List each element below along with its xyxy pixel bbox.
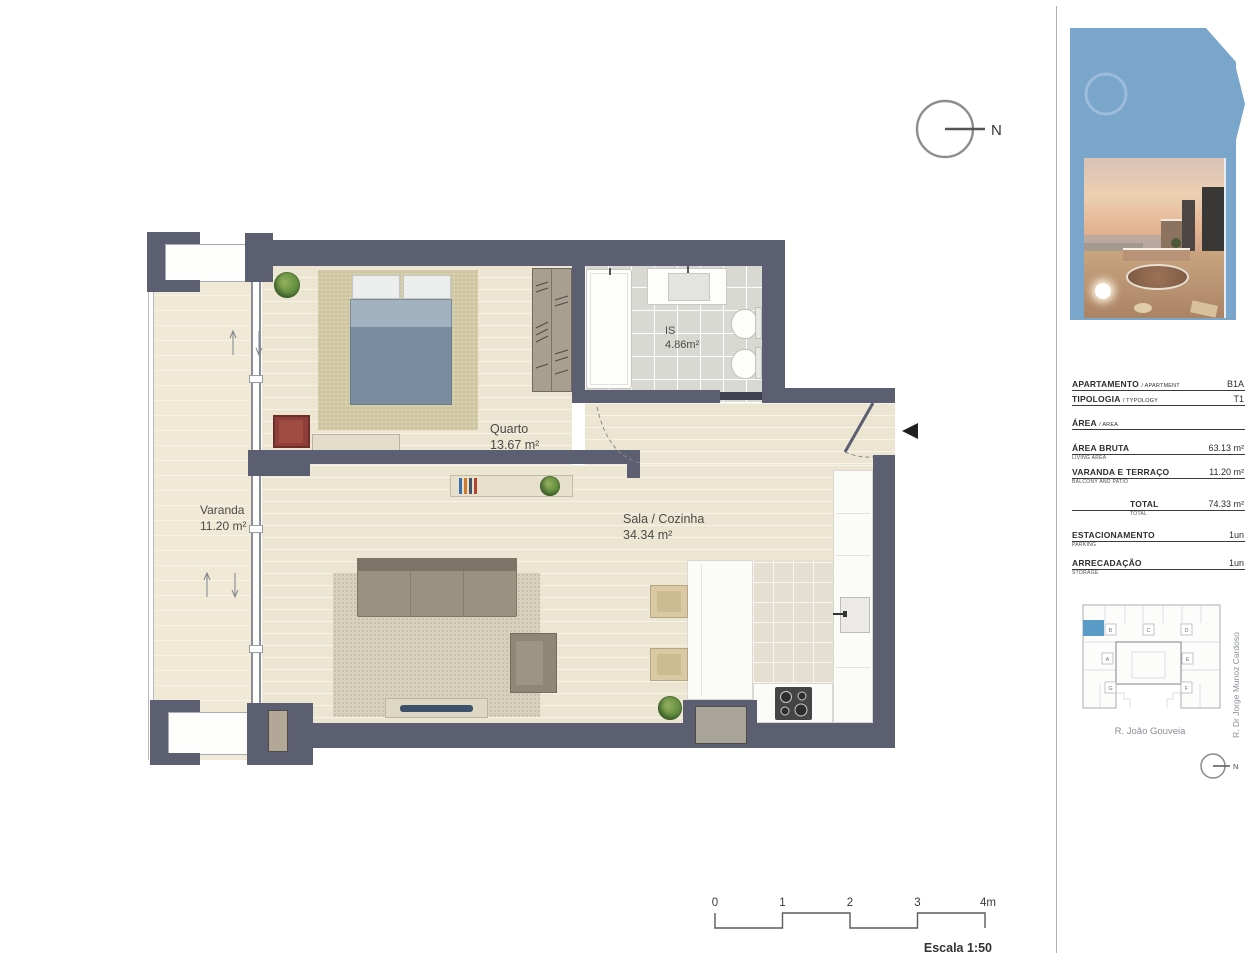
sheet-divider: [1056, 6, 1057, 953]
street-label-right: R. Dr Jorge Munoz Cardoso: [1231, 588, 1241, 738]
highlighted-unit: [1083, 620, 1104, 636]
scale-caption: Escala 1:50: [924, 941, 992, 955]
detail-subcaption: BALCONY AND PATIO: [1072, 479, 1245, 486]
svg-text:N: N: [991, 122, 1002, 139]
apartment-photo: [1084, 158, 1224, 318]
plan-sheet: Quarto13.67 m² Sala / Cozinha34.34 m² IS…: [0, 0, 1249, 958]
svg-text:D: D: [1185, 628, 1189, 634]
room-label-sala: Sala / Cozinha34.34 m²: [623, 511, 704, 544]
photo-plant: [1171, 238, 1181, 248]
detail-row: VARANDA E TERRAÇO 11.20 m²: [1072, 464, 1245, 479]
svg-text:4m: 4m: [980, 897, 996, 909]
svg-text:G: G: [1108, 686, 1112, 692]
svg-text:0: 0: [712, 897, 718, 909]
brand-logo: [1068, 16, 1246, 328]
apartment-details: APARTAMENTO / APARTMENT B1A TIPOLOGIA / …: [1072, 376, 1245, 577]
svg-text:B: B: [1109, 628, 1113, 634]
room-label-quarto: Quarto13.67 m²: [490, 421, 539, 454]
detail-row: ARRECADAÇÃO 1un: [1072, 555, 1245, 570]
sliding-direction-marks: [204, 331, 262, 597]
svg-text:3: 3: [914, 897, 920, 909]
detail-subcaption: PARKING: [1072, 542, 1245, 549]
street-label-bottom: R. João Gouveia: [1090, 726, 1210, 737]
floor-plan: Quarto13.67 m² Sala / Cozinha34.34 m² IS…: [145, 225, 945, 770]
north-arrow: N: [905, 88, 1015, 173]
detail-subcaption: LIVING AREA: [1072, 455, 1245, 462]
site-plan: B C D A E G F: [1080, 592, 1230, 742]
detail-row: APARTAMENTO / APARTMENT B1A: [1072, 376, 1245, 391]
mini-north-arrow: N: [1198, 748, 1246, 786]
door-swings: [145, 225, 945, 770]
detail-row: ESTACIONAMENTO 1un: [1072, 527, 1245, 542]
photo-lamp: [1095, 283, 1111, 299]
scale-bar: 0 1 2 3 4m Escala 1:50: [700, 893, 1000, 957]
room-label-varanda: Varanda11.20 m²: [200, 503, 246, 534]
svg-text:N: N: [1233, 762, 1238, 771]
svg-text:E: E: [1186, 657, 1190, 663]
detail-row: ÁREA / AREA: [1072, 415, 1245, 430]
detail-row: TIPOLOGIA / TYPOLOGY T1: [1072, 391, 1245, 406]
photo-pool-edge: [1123, 248, 1190, 261]
detail-subcaption: STORAGE: [1072, 570, 1245, 577]
room-label-is: IS4.86m²: [665, 324, 699, 353]
svg-text:C: C: [1147, 628, 1151, 634]
svg-text:A: A: [1106, 657, 1110, 663]
entrance-arrow: [902, 423, 918, 439]
detail-subcaption: TOTAL: [1072, 511, 1245, 518]
svg-text:2: 2: [847, 897, 853, 909]
detail-row: TOTAL 74.33 m²: [1072, 496, 1245, 511]
watermark: CONSULTORES: [280, 757, 1100, 854]
photo-pool: [1126, 264, 1189, 290]
detail-row: ÁREA BRUTA 63.13 m²: [1072, 440, 1245, 455]
svg-text:1: 1: [779, 897, 785, 909]
